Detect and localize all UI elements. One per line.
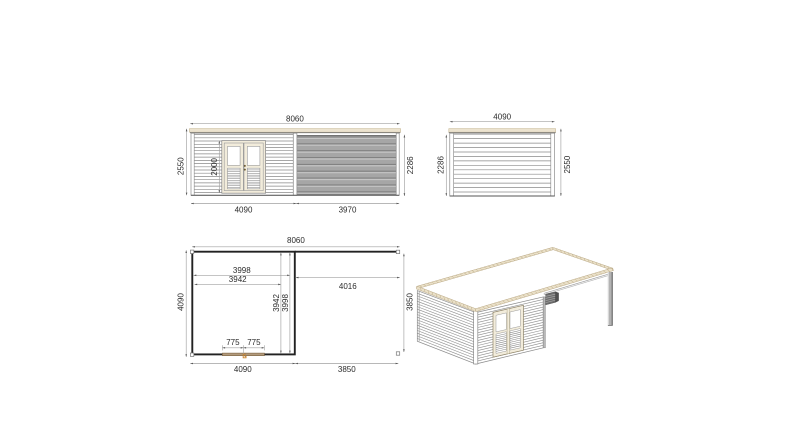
svg-text:775: 775 <box>247 338 261 347</box>
svg-text:4090: 4090 <box>234 365 252 374</box>
svg-text:2550: 2550 <box>177 157 186 175</box>
svg-text:3942: 3942 <box>272 294 281 312</box>
svg-text:2286: 2286 <box>406 156 415 174</box>
svg-text:3998: 3998 <box>233 266 251 275</box>
svg-text:2000: 2000 <box>210 157 219 175</box>
svg-text:3942: 3942 <box>229 275 247 284</box>
svg-text:2550: 2550 <box>563 155 572 173</box>
svg-text:3970: 3970 <box>339 206 357 215</box>
svg-text:4090: 4090 <box>493 112 511 121</box>
svg-text:4016: 4016 <box>339 282 357 291</box>
svg-text:3850: 3850 <box>406 293 415 311</box>
svg-text:3850: 3850 <box>338 365 356 374</box>
svg-text:775: 775 <box>226 338 240 347</box>
svg-text:4090: 4090 <box>176 293 185 311</box>
svg-text:4090: 4090 <box>235 206 253 215</box>
svg-text:3998: 3998 <box>281 294 290 312</box>
svg-text:8060: 8060 <box>286 114 304 123</box>
svg-text:8060: 8060 <box>287 236 305 245</box>
svg-text:2286: 2286 <box>437 156 446 174</box>
